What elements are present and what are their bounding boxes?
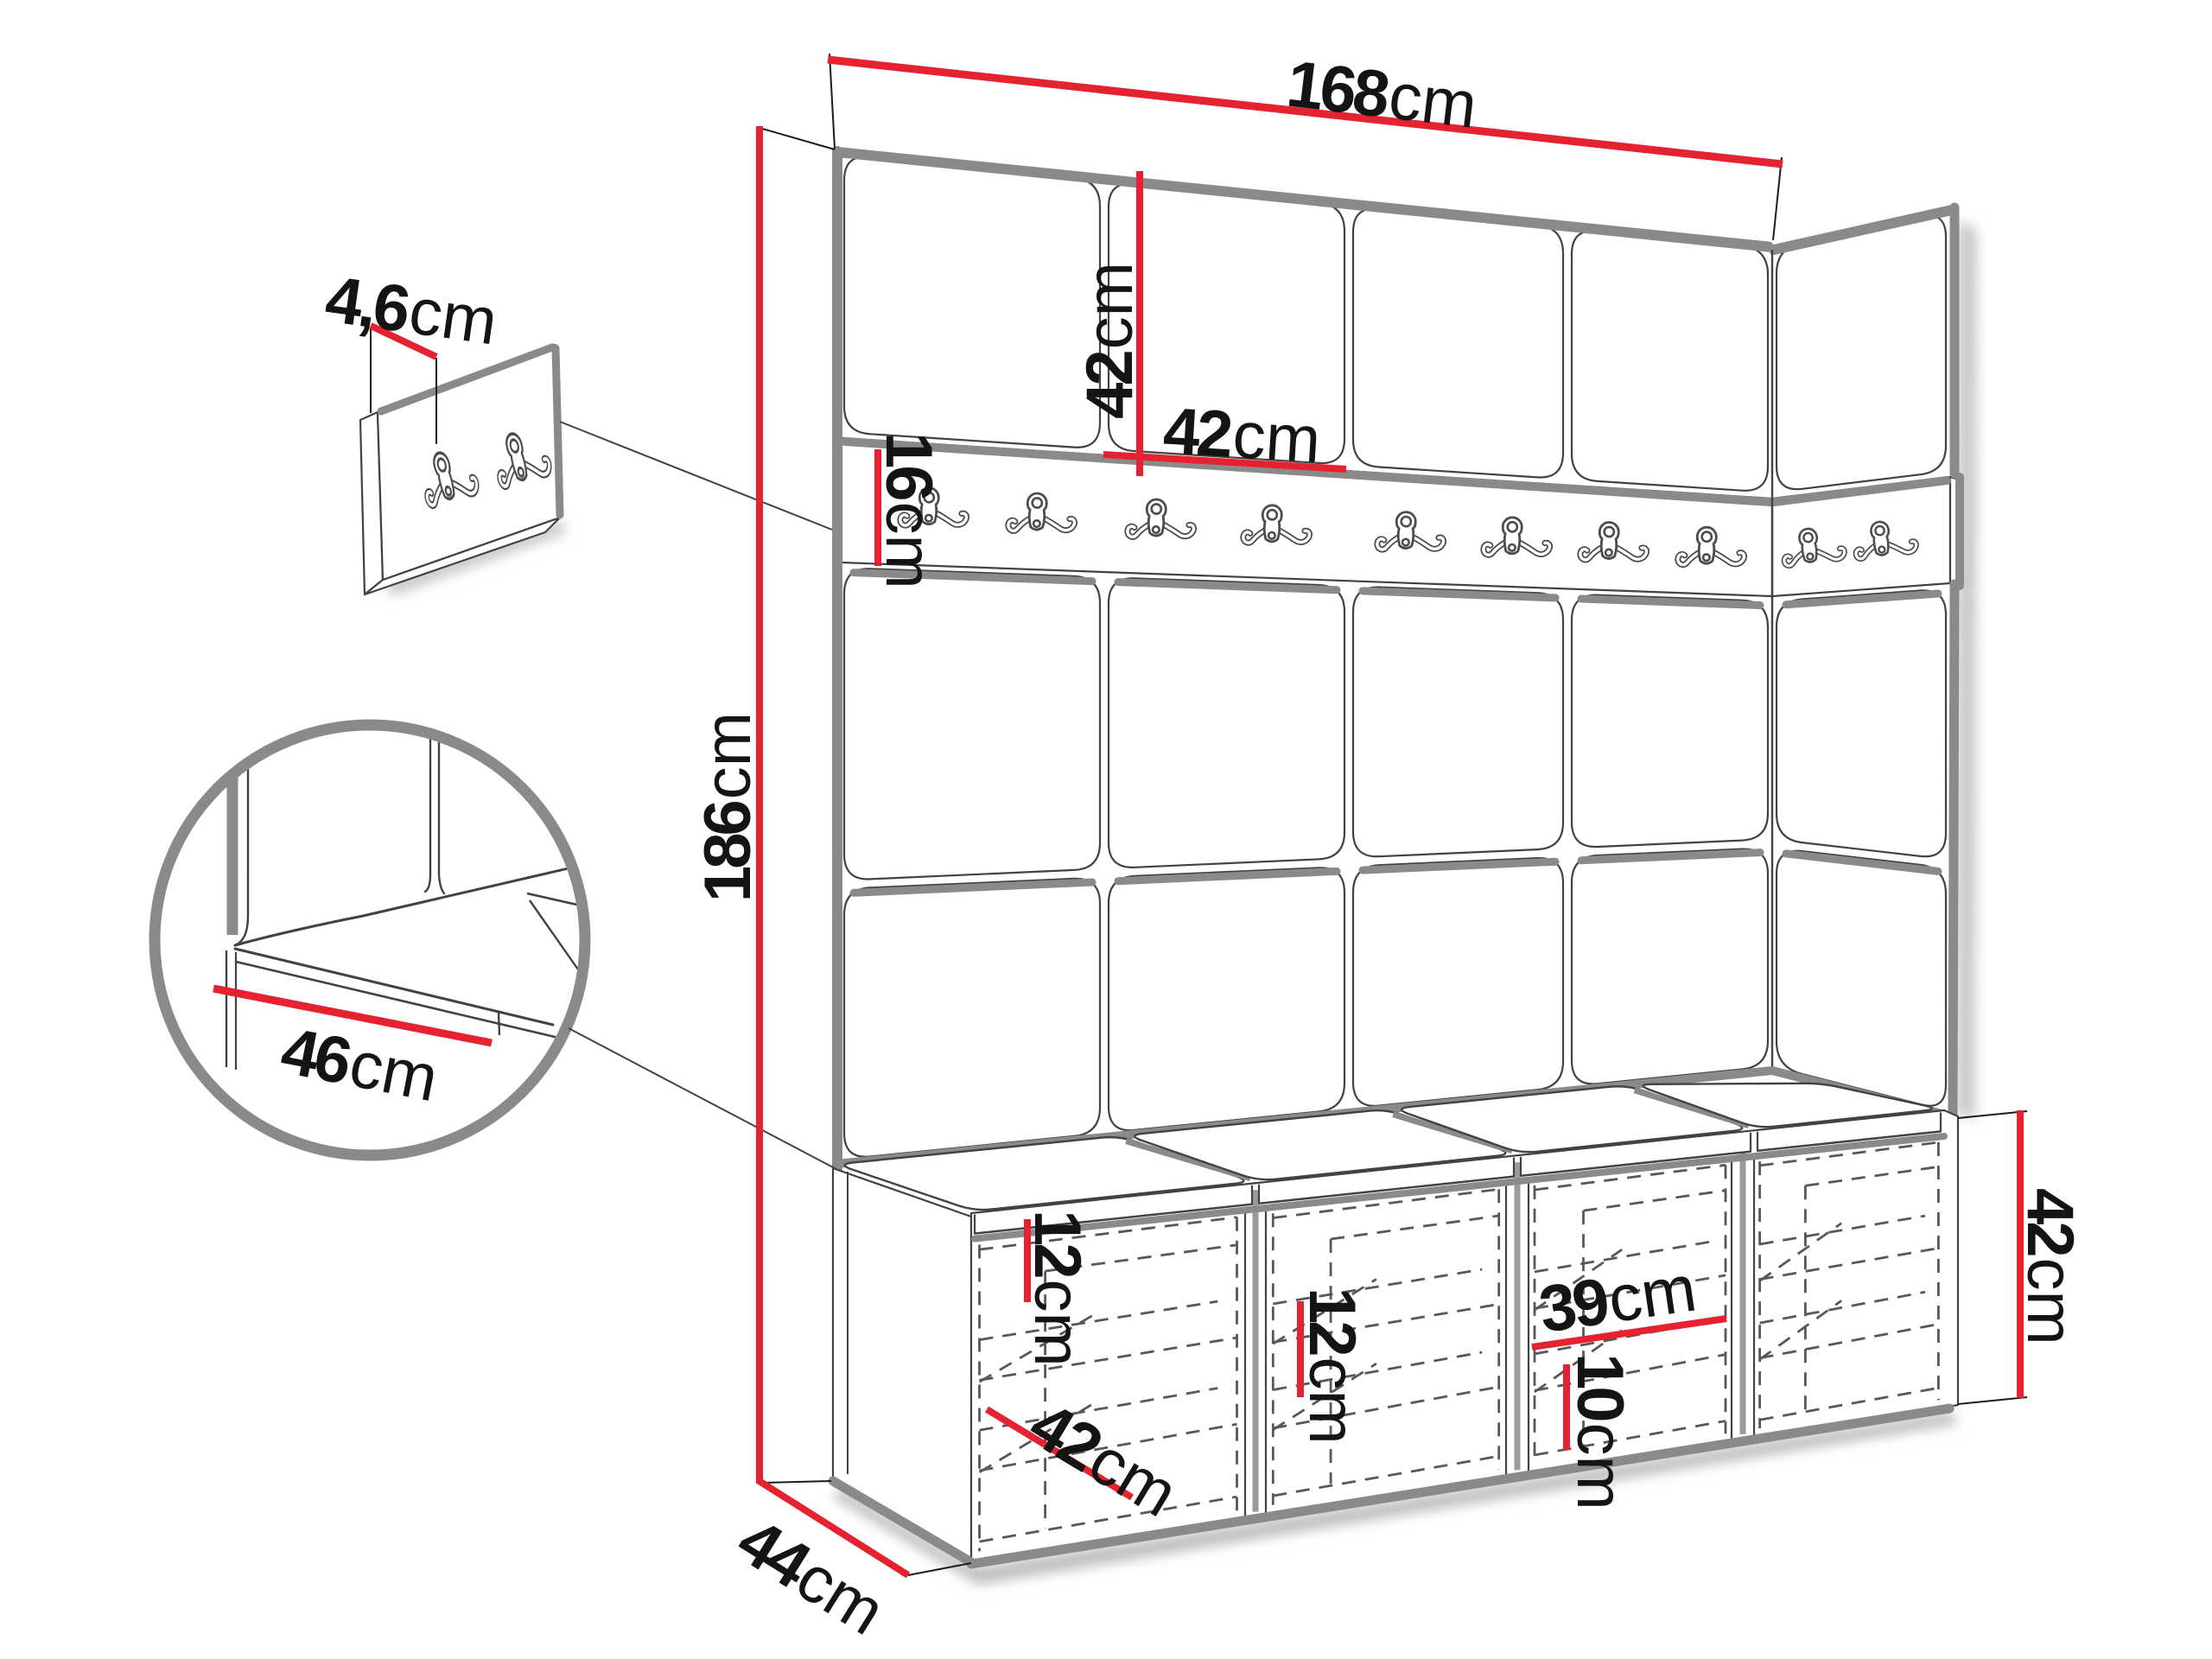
svg-text:10cm: 10cm xyxy=(1563,1353,1637,1510)
svg-text:12cm: 12cm xyxy=(1295,1287,1369,1445)
svg-text:186cm: 186cm xyxy=(691,712,765,902)
svg-text:42cm: 42cm xyxy=(2013,1188,2087,1345)
svg-text:12cm: 12cm xyxy=(1020,1210,1094,1367)
svg-text:42cm: 42cm xyxy=(1161,394,1323,477)
svg-text:42cm: 42cm xyxy=(1073,262,1147,419)
svg-text:16cm: 16cm xyxy=(872,432,945,589)
